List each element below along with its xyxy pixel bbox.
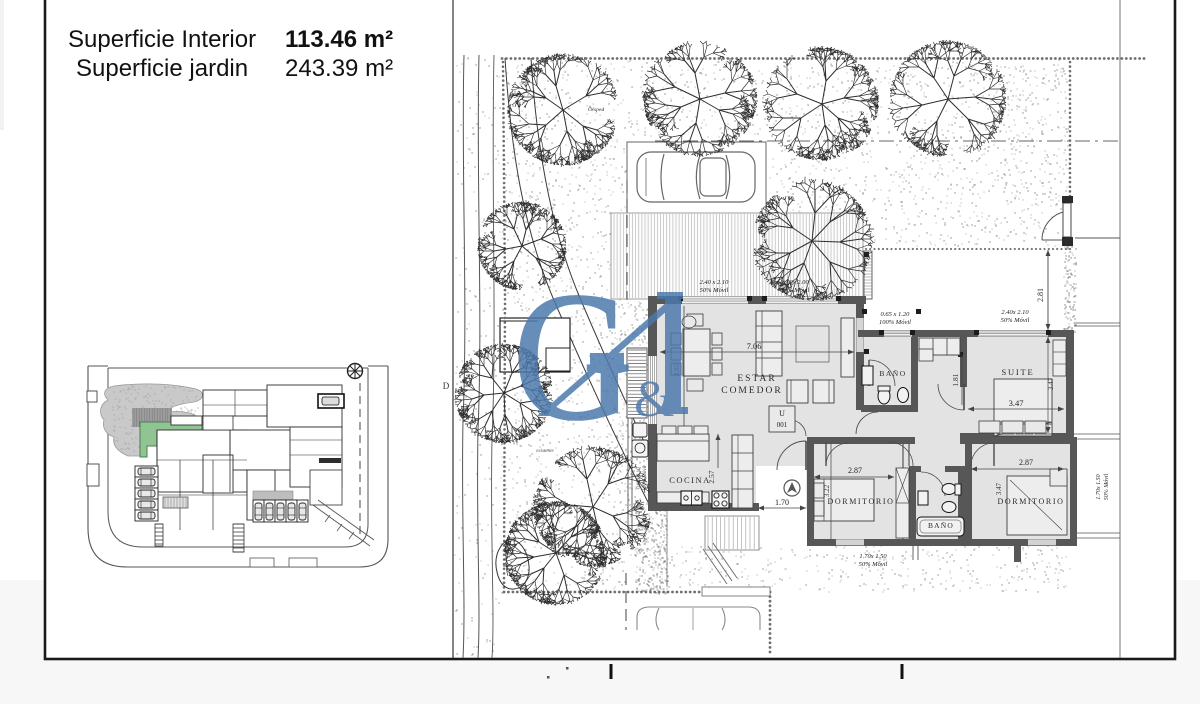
- svg-text:DORMITORIO: DORMITORIO: [998, 497, 1065, 506]
- svg-text:2.40x 2.10: 2.40x 2.10: [1001, 309, 1029, 316]
- svg-text:Superficie jardin: Superficie jardin: [76, 55, 248, 82]
- svg-text:1.81: 1.81: [951, 373, 960, 386]
- svg-text:COMEDOR: COMEDOR: [721, 386, 783, 396]
- svg-text:2.81: 2.81: [1036, 288, 1045, 302]
- svg-text:COCINA: COCINA: [669, 475, 711, 485]
- svg-text:ESTAR: ESTAR: [737, 374, 776, 384]
- svg-text:2.87: 2.87: [848, 466, 862, 475]
- svg-text:50% Móvil: 50% Móvil: [1001, 317, 1030, 324]
- svg-text:2.87: 2.87: [1019, 458, 1033, 467]
- svg-text:113.46 m²: 113.46 m²: [285, 26, 393, 53]
- svg-text:50% Móvil: 50% Móvil: [859, 561, 888, 568]
- svg-text:Césped: Césped: [588, 107, 604, 113]
- svg-text:3.22: 3.22: [823, 484, 831, 497]
- svg-text:Superficie Interior: Superficie Interior: [68, 26, 256, 53]
- svg-text:DORMITORIO: DORMITORIO: [828, 497, 895, 506]
- svg-text:243.39 m²: 243.39 m²: [285, 55, 393, 82]
- svg-text:0.65 x 1.20: 0.65 x 1.20: [881, 311, 911, 318]
- svg-text:SUITE: SUITE: [1001, 367, 1034, 377]
- svg-text:3.47: 3.47: [995, 482, 1003, 495]
- svg-text:&: &: [634, 371, 674, 428]
- svg-text:7.06: 7.06: [747, 341, 762, 351]
- svg-text:1.70x 1.50: 1.70x 1.50: [859, 553, 887, 560]
- svg-text:50% Móvil: 50% Móvil: [1104, 473, 1110, 500]
- svg-text:BAÑO: BAÑO: [879, 368, 906, 378]
- svg-text:100% Móvil: 100% Móvil: [879, 319, 911, 326]
- svg-text:BAÑO: BAÑO: [928, 520, 954, 530]
- svg-text:1.70x 1.50: 1.70x 1.50: [1096, 474, 1102, 499]
- svg-text:3.47: 3.47: [1009, 398, 1024, 408]
- svg-text:2.57: 2.57: [707, 470, 716, 483]
- svg-text:D: D: [443, 381, 450, 391]
- svg-text:001: 001: [777, 421, 788, 429]
- svg-text:U: U: [779, 409, 785, 418]
- svg-text:2.40 x 2.10: 2.40 x 2.10: [700, 279, 730, 286]
- svg-text:1.70: 1.70: [775, 498, 789, 507]
- svg-text:50% Móvil: 50% Móvil: [700, 287, 729, 294]
